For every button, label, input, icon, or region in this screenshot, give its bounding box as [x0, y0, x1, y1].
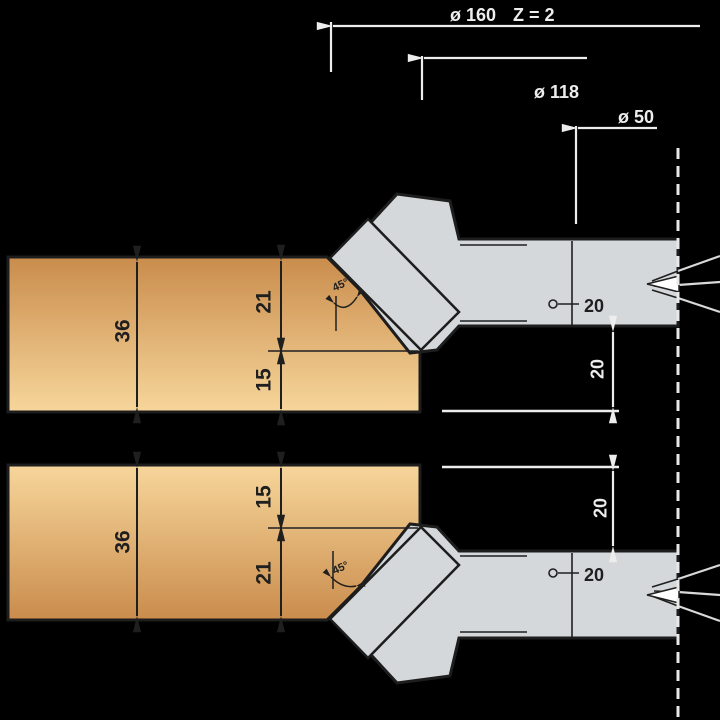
bottom-dim-21-label: 21	[252, 561, 275, 585]
dia118-label: ø 118	[534, 82, 579, 102]
bottom-dim-15-label: 15	[252, 485, 275, 509]
technical-drawing: 20 36 21 15 45° 20 20	[0, 0, 720, 720]
teeth-count-label: Z = 2	[513, 5, 555, 25]
top-dim-21-label: 21	[252, 290, 275, 314]
bottom-dim-36-label: 36	[111, 530, 134, 553]
top-hub-width-label: 20	[584, 296, 604, 316]
top-dim-15-label: 15	[252, 368, 275, 392]
bottom-offset-label: 20	[590, 498, 610, 518]
top-offset-label: 20	[587, 359, 607, 379]
top-dim-36-label: 36	[111, 319, 134, 342]
bottom-hub-width-label: 20	[584, 565, 604, 585]
dia160-label: ø 160	[450, 5, 496, 25]
dia50-label: ø 50	[618, 107, 654, 127]
